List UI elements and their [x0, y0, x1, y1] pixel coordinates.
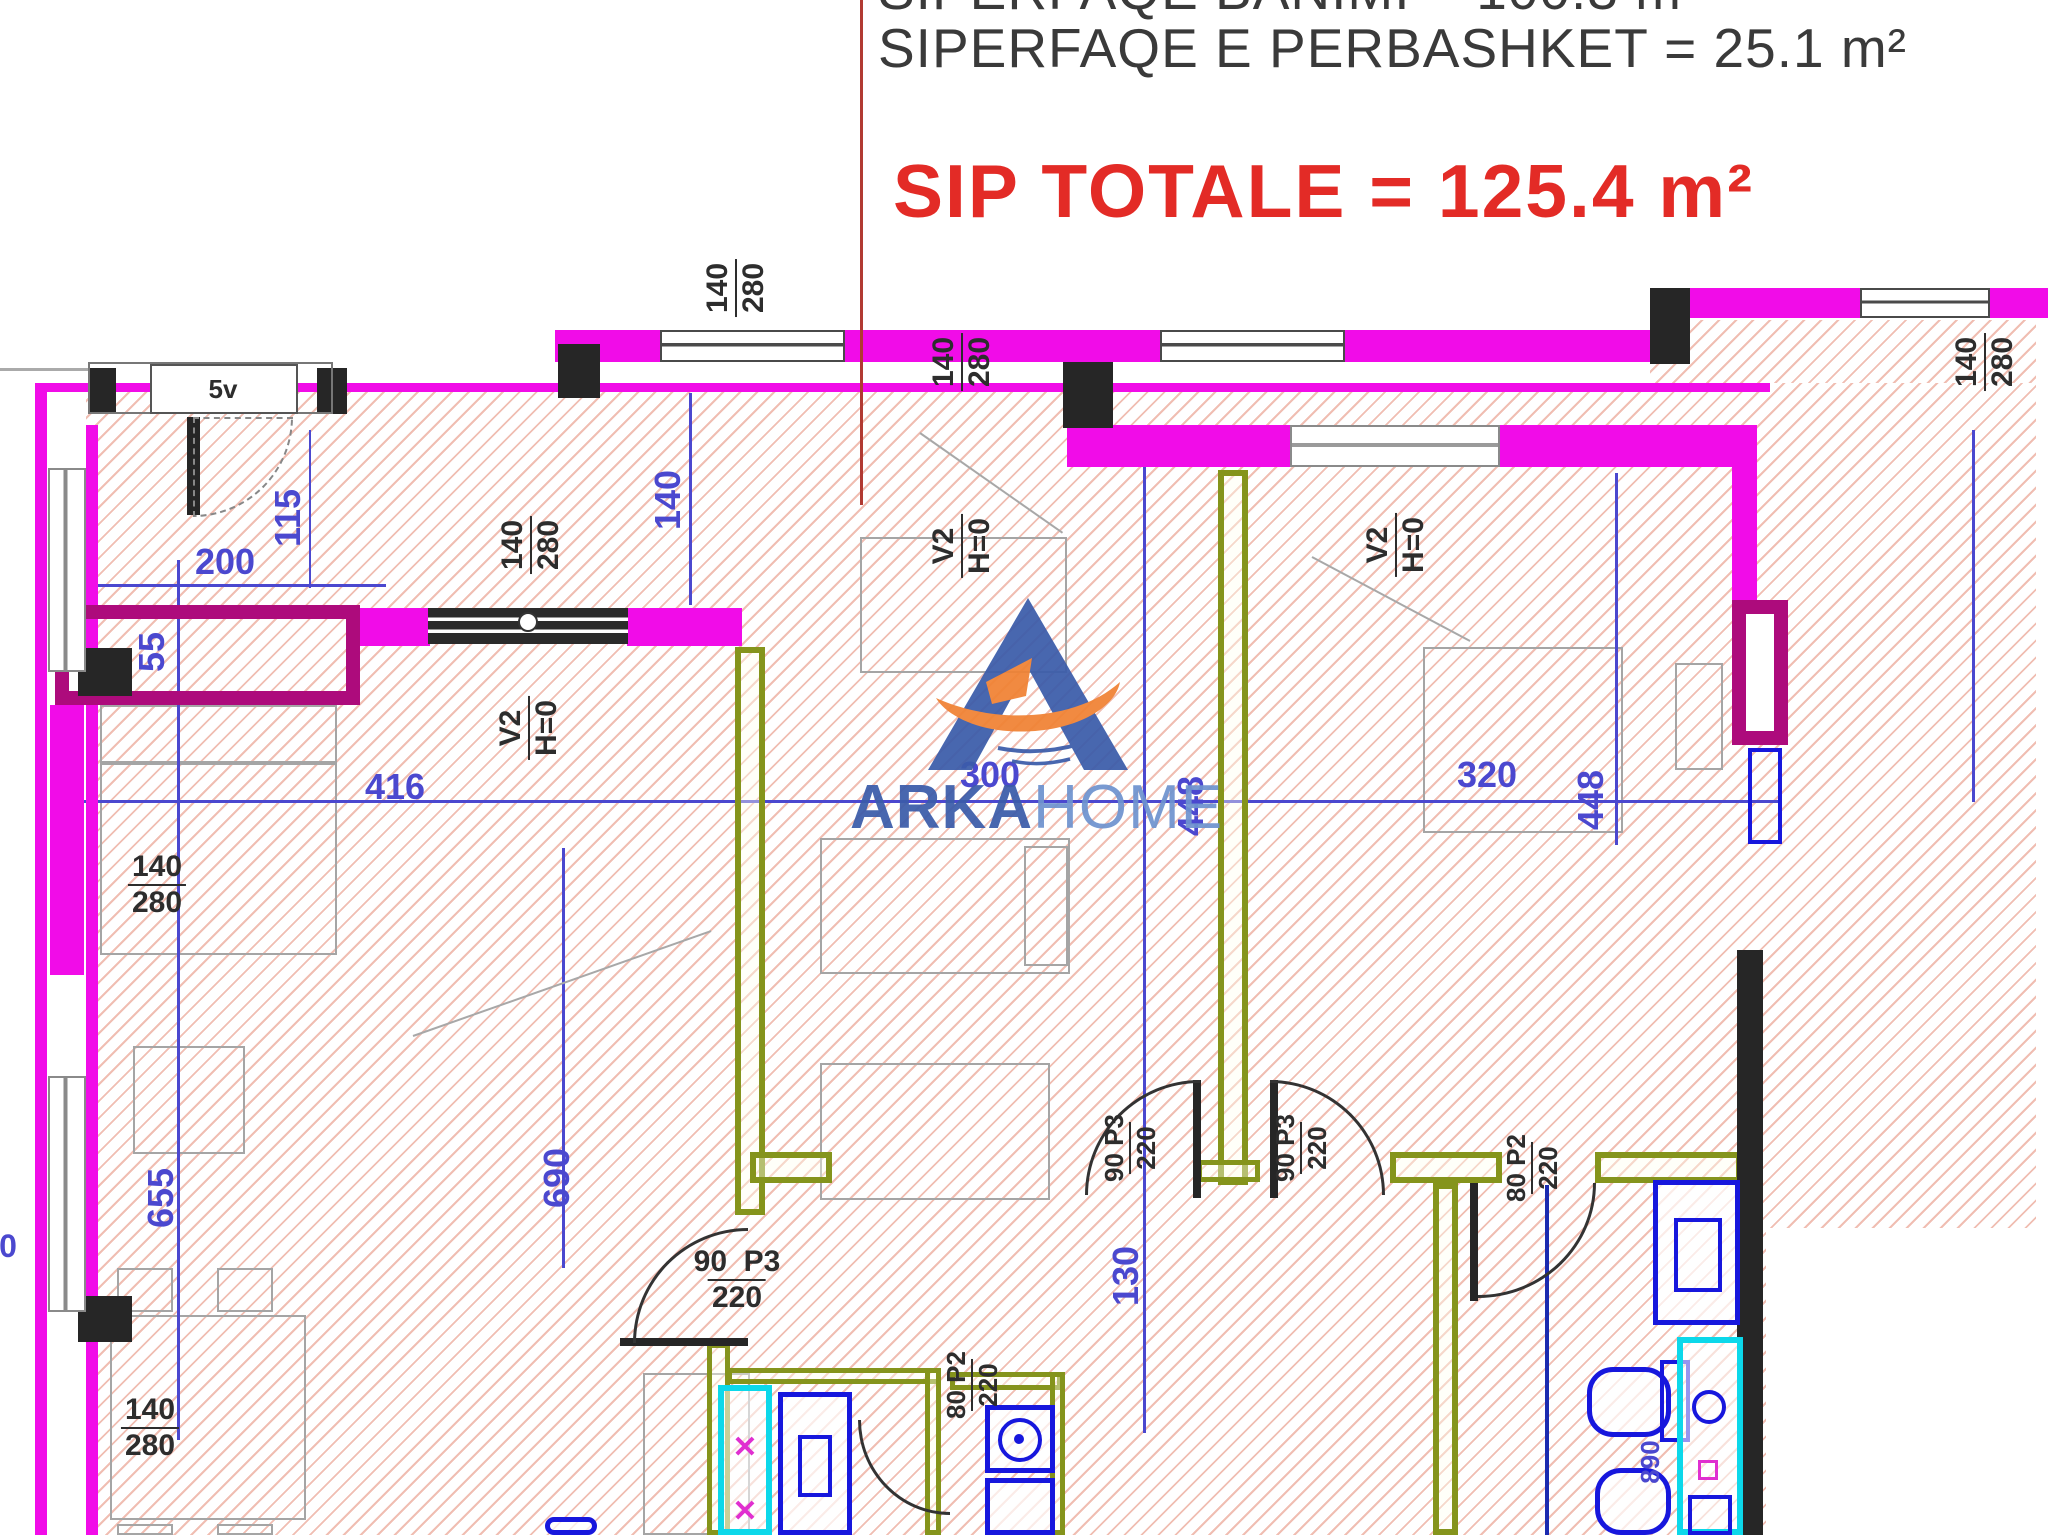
washing-machine-door: [1674, 1218, 1722, 1292]
armchair: [133, 1046, 245, 1154]
wall: [627, 608, 742, 646]
dimension-label: 0: [0, 1230, 17, 1262]
window-pivot: [518, 612, 538, 632]
floor-plan-page: 2001155541614030044832044869065513089001…: [0, 0, 2048, 1535]
partition-wall: [1433, 1183, 1458, 1535]
wall: [35, 383, 47, 1535]
wall: [845, 330, 1160, 362]
wall: [355, 608, 430, 646]
sofa: [100, 705, 337, 763]
wall: [1500, 425, 1757, 467]
partition-wall: [1390, 1152, 1502, 1183]
arkahome-logo: ARKAHOME: [850, 595, 1210, 845]
chair: [117, 1524, 173, 1535]
partition-wall: [1595, 1152, 1742, 1183]
drain-mark: ✕: [732, 1497, 757, 1527]
column: [78, 1296, 132, 1342]
dimension-line: [689, 393, 692, 605]
dimension-label: 320: [1457, 757, 1517, 793]
chair: [217, 1524, 273, 1535]
window: [48, 1076, 86, 1312]
window-tag: V2H=0: [496, 696, 562, 760]
arkahome-logo-mark: [928, 598, 1128, 773]
chair: [217, 1268, 273, 1312]
stove-knob: [1014, 1434, 1024, 1444]
desk: [820, 1063, 1050, 1200]
dimension-line: [309, 430, 311, 588]
column: [1063, 362, 1113, 428]
column: [78, 648, 132, 696]
wall: [86, 425, 98, 1535]
dimension-label: 140280: [128, 852, 186, 918]
drain-mark: [1698, 1460, 1718, 1480]
dimension-label: 200: [195, 544, 255, 580]
dimension-label: 655: [143, 1168, 179, 1228]
dimension-line: [1615, 473, 1618, 845]
drain: [1692, 1390, 1726, 1424]
dimension-label: 140280: [703, 259, 769, 317]
dimension-label: 55: [134, 632, 170, 672]
door-tag: 80 P2220: [1503, 1130, 1561, 1206]
dimension-line: [70, 584, 386, 587]
dimension-label: 416: [365, 769, 425, 805]
nightstand: [1675, 663, 1723, 770]
washing-machine-door: [798, 1435, 832, 1497]
partition-wall: [735, 647, 765, 1215]
door-leaf: [1470, 1183, 1478, 1301]
brand-light: HOME: [1033, 773, 1223, 842]
siperfaqe-perbashket-text: SIPERFAQE E PERBASHKET = 25.1 m²: [878, 20, 1907, 78]
dimension-label: 140280: [121, 1395, 179, 1461]
shaft-wall: [1732, 600, 1788, 745]
arkahome-wordmark: ARKAHOME: [850, 777, 1210, 839]
dimension-label: 115: [270, 489, 306, 547]
sink: [545, 1517, 597, 1535]
window: [1160, 330, 1345, 362]
partition-wall: [750, 1152, 832, 1183]
door-tag: 5v: [209, 376, 238, 402]
dimension-label: 140280: [1952, 333, 2018, 391]
dimension-label: 140280: [929, 333, 995, 391]
door-tag: 90 P3220: [1272, 1110, 1330, 1186]
dimension-label: 448: [1573, 770, 1609, 830]
oven: [985, 1478, 1055, 1535]
toilet: [1587, 1367, 1671, 1437]
wall: [1990, 288, 2048, 318]
sip-totale-text: SIP TOTALE = 125.4 m²: [893, 148, 1754, 234]
window: [660, 330, 845, 362]
logo-a-icon: [928, 598, 1128, 770]
balcony-edge: [0, 368, 90, 371]
wall: [1067, 425, 1290, 467]
dimension-label: 140: [650, 470, 686, 530]
partition-wall: [727, 1368, 941, 1384]
red-divider-line: [860, 0, 863, 505]
brand-bold: ARKA: [850, 773, 1033, 842]
sink: [1688, 1495, 1732, 1535]
dimension-line: [1972, 430, 1975, 802]
drain-mark: ✕: [732, 1433, 757, 1463]
dimension-label: 690: [539, 1148, 575, 1208]
dimension-label: 140280: [498, 516, 564, 574]
wall: [1732, 425, 1757, 603]
pillow: [1024, 846, 1068, 966]
door-tag: 80 P2220: [943, 1347, 1001, 1423]
outside-area: [1766, 1228, 2048, 1535]
column: [558, 344, 600, 398]
window-tag: V2H=0: [1363, 513, 1429, 577]
window: [48, 468, 86, 672]
window: [1290, 425, 1500, 467]
window: [1860, 288, 1990, 318]
logo-wave-icon: [1012, 759, 1070, 764]
wall: [50, 705, 84, 975]
column: [1650, 288, 1690, 364]
partition-wall: [1197, 1160, 1260, 1182]
window-tag: V2H=0: [929, 514, 995, 578]
logo-wave-icon: [998, 744, 1080, 751]
door-tag: 90 P3220: [1101, 1110, 1159, 1186]
boiler: [1748, 748, 1782, 844]
door-tag: 90 P3220: [690, 1247, 785, 1313]
dimension-label: 890: [1637, 1440, 1663, 1483]
dimension-label: 130: [1108, 1246, 1144, 1306]
wall: [1345, 330, 1650, 362]
